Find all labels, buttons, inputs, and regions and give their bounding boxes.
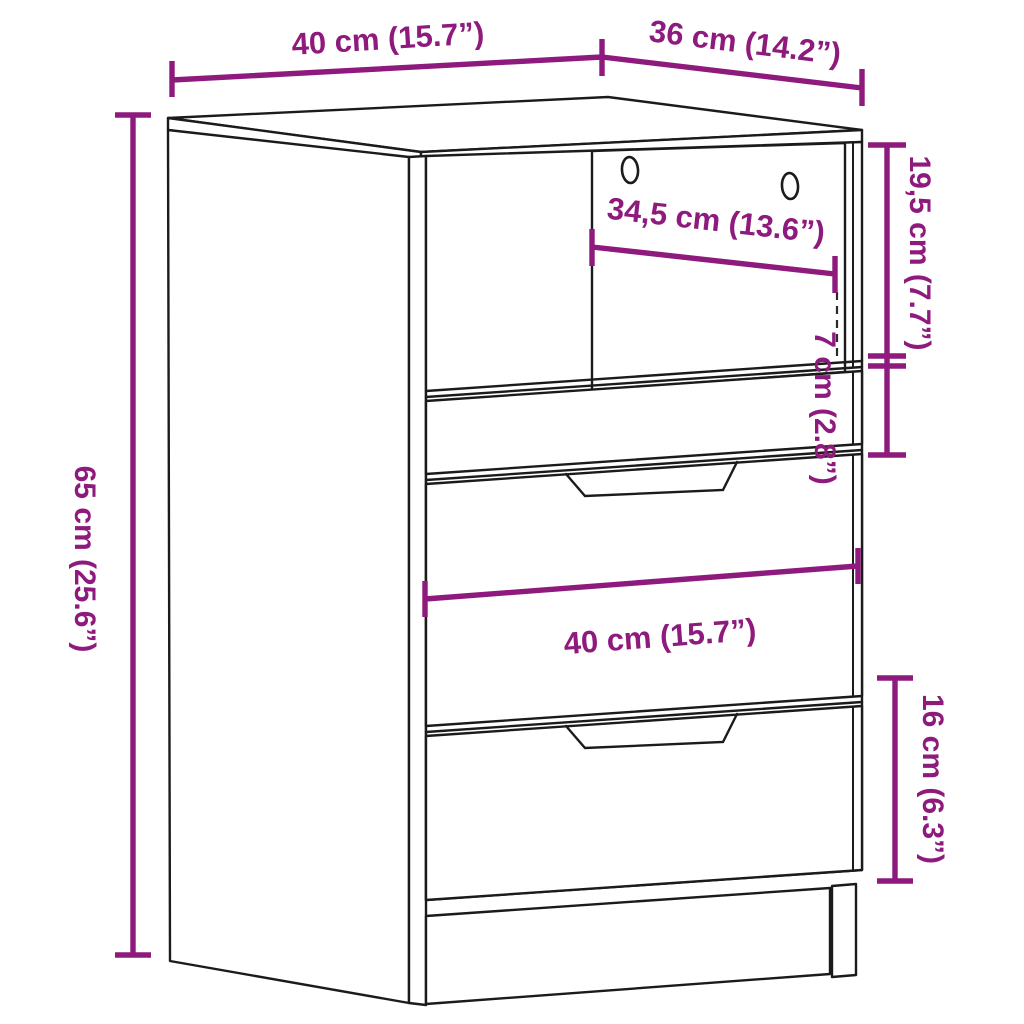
dim-top-width-label: 40 cm (15.7”) [291, 15, 486, 62]
dim-shelf-opening-label: 19,5 cm (7.7”) [903, 155, 936, 350]
dim-total-height-label: 65 cm (25.6”) [68, 466, 101, 653]
dim-bottom-drawer-line [877, 678, 913, 881]
dim-shelf-opening-line [868, 145, 906, 455]
drawer-2 [426, 454, 862, 726]
plinth-panel [426, 888, 830, 1004]
cam-hole-left [621, 156, 639, 183]
dim-total-height-line [115, 115, 151, 955]
cabinet-side-panel [168, 130, 409, 1003]
drawer-3 [426, 706, 862, 900]
dim-top-width: 40 cm (15.7”) [172, 15, 602, 97]
cabinet-corner-post [409, 156, 426, 1005]
cabinet-diagram-svg: 40 cm (15.7”) 36 cm (14.2”) 34,5 cm (13.… [0, 0, 1024, 1024]
dim-top-depth-label: 36 cm (14.2”) [647, 13, 843, 71]
dim-small-drawer-label: 7 cm (2.8”) [808, 331, 841, 484]
dim-top-depth: 36 cm (14.2”) [602, 13, 862, 106]
dimension-diagram: 40 cm (15.7”) 36 cm (14.2”) 34,5 cm (13.… [0, 0, 1024, 1024]
dim-bottom-drawer: 16 cm (6.3”) [877, 678, 949, 881]
dim-total-height: 65 cm (25.6”) [68, 115, 151, 955]
cam-hole-right [781, 172, 799, 199]
dim-bottom-drawer-label: 16 cm (6.3”) [916, 694, 949, 864]
right-foot [832, 884, 856, 977]
